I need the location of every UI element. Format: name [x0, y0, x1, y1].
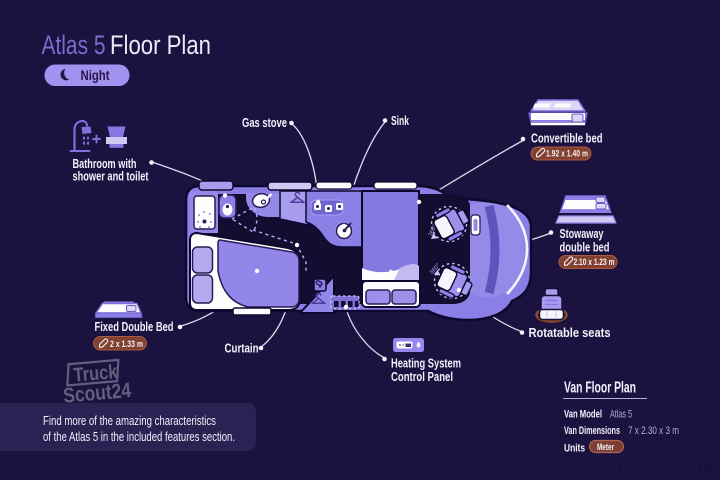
svg-text:Floor Plan: Floor Plan	[110, 30, 211, 60]
svg-text:Van Floor Plan: Van Floor Plan	[564, 380, 636, 397]
svg-text:Find more of the amazing chara: Find more of the amazing characteristics	[43, 413, 216, 428]
svg-text:double bed: double bed	[560, 240, 610, 255]
svg-text:Curtain: Curtain	[225, 341, 259, 356]
svg-text:7 x 2.30 x 3 m: 7 x 2.30 x 3 m	[628, 425, 679, 437]
svg-text:shower and toilet: shower and toilet	[73, 169, 149, 184]
svg-text:Rotatable seats: Rotatable seats	[529, 325, 611, 340]
svg-text:Convertible bed: Convertible bed	[531, 131, 603, 146]
svg-text:Van Model: Van Model	[564, 409, 602, 421]
svg-text:Van Dimensions: Van Dimensions	[564, 425, 620, 437]
svg-text:Units: Units	[564, 443, 585, 455]
svg-text:2 x 1.33 m: 2 x 1.33 m	[110, 339, 143, 349]
svg-text:Fixed Double Bed: Fixed Double Bed	[95, 319, 174, 334]
svg-text:Night: Night	[81, 68, 110, 83]
svg-text:Control Panel: Control Panel	[391, 369, 453, 384]
svg-text:Sink: Sink	[391, 113, 409, 128]
svg-text:of the Atlas 5 in the included: of the Atlas 5 in the included features …	[43, 429, 235, 444]
svg-text:Gas stove: Gas stove	[242, 115, 287, 130]
svg-text:2.10 x 1.23 m: 2.10 x 1.23 m	[574, 257, 615, 267]
svg-text:Atlas 5: Atlas 5	[42, 30, 106, 60]
svg-text:Atlas 5: Atlas 5	[610, 409, 632, 421]
svg-text:1.92 x 1.40 m: 1.92 x 1.40 m	[546, 149, 588, 159]
svg-text:Meter: Meter	[597, 442, 614, 452]
svg-text:165334-20231825: 165334-20231825	[617, 460, 720, 480]
